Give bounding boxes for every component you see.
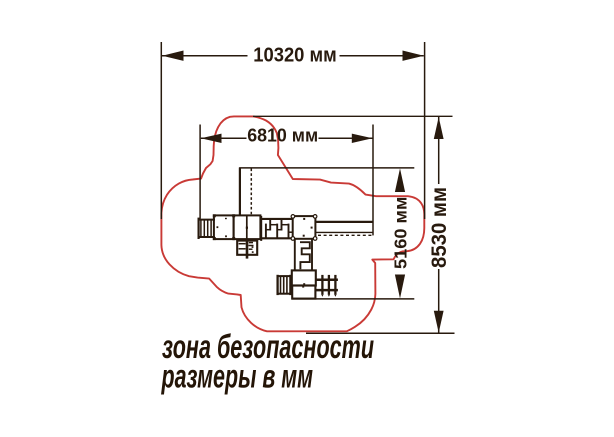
svg-text:8530 мм: 8530 мм <box>428 187 451 268</box>
svg-text:6810 мм: 6810 мм <box>247 125 318 145</box>
svg-text:5160 мм: 5160 мм <box>390 197 410 269</box>
svg-text:10320 мм: 10320 мм <box>253 44 337 67</box>
svg-text:размеры в мм: размеры в мм <box>161 357 313 394</box>
